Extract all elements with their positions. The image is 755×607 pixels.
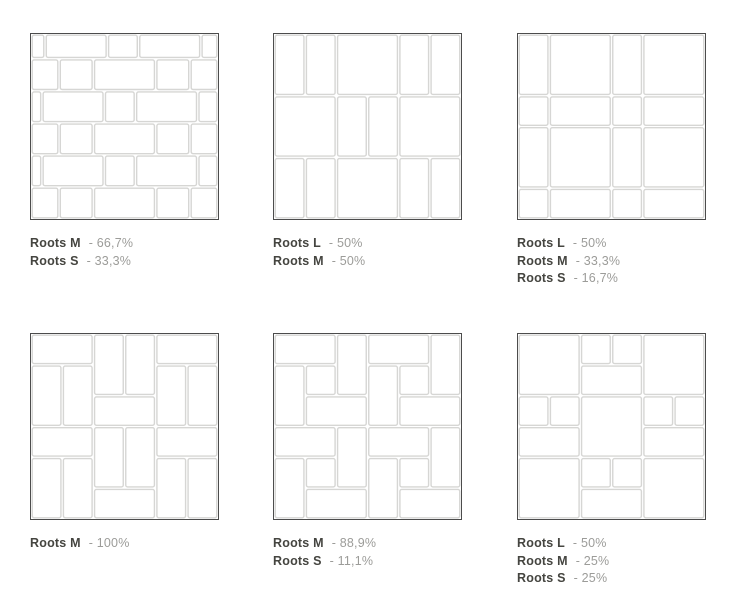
tile: [519, 459, 579, 518]
tile: [157, 335, 217, 363]
legend-row: Roots M - 88,9%: [273, 535, 462, 553]
tile: [400, 459, 429, 487]
tile: [32, 459, 61, 518]
tile: [199, 156, 217, 186]
tile: [369, 428, 429, 456]
tile: [63, 459, 92, 518]
legend-row: Roots M - 100%: [30, 535, 219, 553]
tile-size-name: Roots M: [517, 553, 568, 571]
tile-diagram-4: [30, 333, 219, 520]
tile: [519, 97, 548, 125]
tile: [582, 397, 642, 456]
tile-diagram-5-svg: [274, 334, 461, 519]
legend-row: Roots L - 50%: [273, 235, 462, 253]
tile-share-value: - 33,3%: [576, 253, 620, 271]
tile-diagram-2: [273, 33, 462, 220]
tile: [550, 128, 610, 187]
tile-size-name: Roots L: [273, 235, 321, 253]
tile: [95, 397, 155, 425]
tile: [126, 428, 155, 487]
legend-row: Roots L - 50%: [517, 535, 706, 553]
tile: [582, 489, 642, 517]
tile: [400, 489, 460, 517]
tile: [306, 366, 335, 394]
tile: [275, 35, 304, 94]
tile-size-name: Roots M: [30, 235, 81, 253]
tile: [519, 35, 548, 94]
tile: [582, 366, 642, 394]
tile: [95, 188, 155, 218]
tile: [644, 459, 704, 518]
legend-row: Roots M - 66,7%: [30, 235, 219, 253]
tile: [338, 428, 367, 487]
pattern-figure-2: Roots L - 50% Roots M - 50%: [273, 33, 462, 270]
tile-share-value: - 50%: [332, 253, 366, 271]
tile: [613, 459, 642, 487]
legend-row: Roots L - 50%: [517, 235, 706, 253]
tile: [519, 128, 548, 187]
tile-share-value: - 33,3%: [87, 253, 131, 271]
tile: [275, 428, 335, 456]
tile-size-name: Roots S: [30, 253, 79, 271]
tile-size-name: Roots S: [273, 553, 322, 571]
tile: [32, 60, 58, 90]
pattern-figure-6: Roots L - 50% Roots M - 25% Roots S - 25…: [517, 333, 706, 588]
tile: [613, 335, 642, 363]
tile: [431, 428, 460, 487]
tile: [306, 459, 335, 487]
tile-share-value: - 25%: [576, 553, 610, 571]
tile-share-value: - 11,1%: [330, 553, 374, 571]
tile: [60, 60, 92, 90]
tile: [188, 366, 217, 425]
tile: [550, 97, 610, 125]
tile: [400, 159, 429, 218]
tile: [338, 335, 367, 394]
tile-diagram-3-svg: [518, 34, 705, 219]
tile-share-value: - 50%: [329, 235, 363, 253]
tile: [32, 35, 44, 57]
tile: [95, 428, 124, 487]
tile: [644, 128, 704, 187]
legend-row: Roots M - 25%: [517, 553, 706, 571]
tile: [613, 35, 642, 94]
tile-diagram-3: [517, 33, 706, 220]
tile: [519, 428, 579, 456]
tile-share-value: - 100%: [89, 535, 130, 553]
tile: [60, 124, 92, 154]
tile: [275, 459, 304, 518]
legend-5: Roots M - 88,9% Roots S - 11,1%: [273, 535, 462, 570]
tile: [644, 397, 673, 425]
legend-6: Roots L - 50% Roots M - 25% Roots S - 25…: [517, 535, 706, 588]
tile-pattern-sheet: Roots M - 66,7% Roots S - 33,3% Roots L …: [0, 0, 755, 607]
tile: [275, 97, 335, 156]
legend-4: Roots M - 100%: [30, 535, 219, 553]
tile: [582, 459, 611, 487]
tile: [275, 335, 335, 363]
tile: [46, 35, 106, 57]
pattern-figure-3: Roots L - 50% Roots M - 33,3% Roots S - …: [517, 33, 706, 288]
tile: [137, 92, 197, 122]
tile: [105, 156, 134, 186]
tile: [63, 366, 92, 425]
tile-share-value: - 25%: [574, 570, 608, 588]
tile: [32, 188, 58, 218]
tile: [550, 35, 610, 94]
tile: [191, 188, 217, 218]
pattern-figure-5: Roots M - 88,9% Roots S - 11,1%: [273, 333, 462, 570]
tile: [400, 366, 429, 394]
tile-size-name: Roots M: [517, 253, 568, 271]
tile: [275, 159, 304, 218]
tile: [306, 397, 366, 425]
tile: [60, 188, 92, 218]
tile-share-value: - 16,7%: [574, 270, 618, 288]
tile: [32, 428, 92, 456]
tile: [550, 189, 610, 217]
tile-diagram-6-svg: [518, 334, 705, 519]
tile-size-name: Roots L: [517, 235, 565, 253]
tile: [199, 92, 217, 122]
tile: [95, 124, 155, 154]
legend-1: Roots M - 66,7% Roots S - 33,3%: [30, 235, 219, 270]
tile-share-value: - 66,7%: [89, 235, 133, 253]
tile: [338, 35, 398, 94]
legend-row: Roots S - 11,1%: [273, 553, 462, 571]
tile: [202, 35, 217, 57]
legend-2: Roots L - 50% Roots M - 50%: [273, 235, 462, 270]
tile: [32, 335, 92, 363]
tile: [275, 366, 304, 425]
tile-diagram-4-svg: [31, 334, 218, 519]
tile-share-value: - 50%: [573, 235, 607, 253]
tile-size-name: Roots S: [517, 570, 566, 588]
legend-row: Roots M - 33,3%: [517, 253, 706, 271]
tile: [644, 35, 704, 94]
tile: [306, 489, 366, 517]
tile: [32, 156, 40, 186]
tile: [157, 188, 189, 218]
tile: [157, 366, 186, 425]
legend-row: Roots S - 16,7%: [517, 270, 706, 288]
tile: [613, 128, 642, 187]
pattern-figure-1: Roots M - 66,7% Roots S - 33,3%: [30, 33, 219, 270]
tile: [157, 428, 217, 456]
tile: [369, 459, 398, 518]
legend-row: Roots M - 50%: [273, 253, 462, 271]
tile: [306, 35, 335, 94]
tile: [369, 366, 398, 425]
tile: [644, 428, 704, 456]
tile: [431, 35, 460, 94]
tile: [431, 335, 460, 394]
tile: [126, 335, 155, 394]
tile: [431, 159, 460, 218]
tile: [32, 124, 58, 154]
tile-size-name: Roots M: [273, 253, 324, 271]
tile: [95, 489, 155, 517]
tile: [644, 335, 704, 394]
tile: [519, 335, 579, 394]
tile: [644, 97, 704, 125]
tile: [613, 189, 642, 217]
tile: [157, 124, 189, 154]
tile-diagram-6: [517, 333, 706, 520]
tile: [519, 189, 548, 217]
tile: [109, 35, 138, 57]
tile: [105, 92, 134, 122]
tile: [188, 459, 217, 518]
tile: [157, 459, 186, 518]
tile: [95, 60, 155, 90]
tile-diagram-1: [30, 33, 219, 220]
tile: [400, 35, 429, 94]
tile: [191, 60, 217, 90]
legend-row: Roots S - 33,3%: [30, 253, 219, 271]
tile-share-value: - 50%: [573, 535, 607, 553]
tile: [550, 397, 579, 425]
tile: [43, 156, 103, 186]
tile: [400, 397, 460, 425]
tile: [32, 92, 40, 122]
tile-diagram-5: [273, 333, 462, 520]
tile: [675, 397, 704, 425]
tile: [400, 97, 460, 156]
tile-diagram-1-svg: [31, 34, 218, 219]
tile: [369, 97, 398, 156]
pattern-figure-4: Roots M - 100%: [30, 333, 219, 553]
tile: [140, 35, 200, 57]
tile: [43, 92, 103, 122]
tile-size-name: Roots S: [517, 270, 566, 288]
tile: [306, 159, 335, 218]
legend-3: Roots L - 50% Roots M - 33,3% Roots S - …: [517, 235, 706, 288]
tile-size-name: Roots M: [273, 535, 324, 553]
tile-diagram-2-svg: [274, 34, 461, 219]
tile-size-name: Roots M: [30, 535, 81, 553]
tile: [369, 335, 429, 363]
tile: [95, 335, 124, 394]
tile: [338, 97, 367, 156]
tile: [191, 124, 217, 154]
tile: [338, 159, 398, 218]
tile: [32, 366, 61, 425]
tile: [519, 397, 548, 425]
tile: [582, 335, 611, 363]
tile-size-name: Roots L: [517, 535, 565, 553]
tile: [137, 156, 197, 186]
tile: [644, 189, 704, 217]
tile: [157, 60, 189, 90]
tile: [613, 97, 642, 125]
legend-row: Roots S - 25%: [517, 570, 706, 588]
tile-share-value: - 88,9%: [332, 535, 376, 553]
